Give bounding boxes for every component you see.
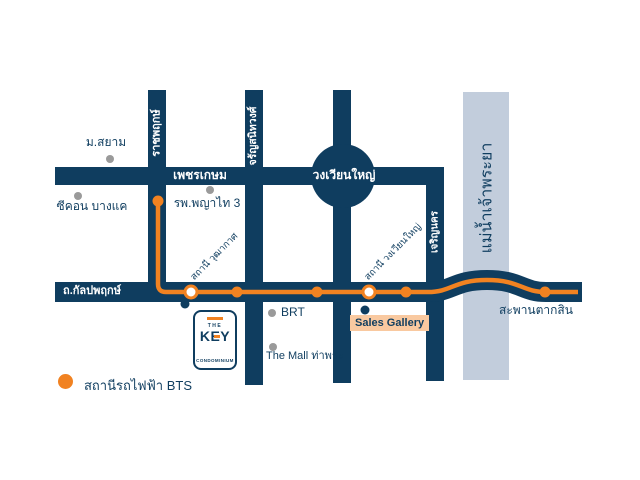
sales-gallery-tag: Sales Gallery — [350, 315, 429, 331]
station-dot-saphan-taksin — [540, 287, 551, 298]
road-label-charoen-nakhon: เจริญนคร — [429, 211, 441, 253]
road-label-wongwian-yai: วงเวียนใหญ่ — [302, 169, 386, 183]
station-label-saphan-taksin: สะพานตากสิน — [496, 304, 576, 318]
the-key-condominium-logo: THE KEY CONDOMINIUM — [193, 310, 237, 370]
logo-condominium-text: CONDOMINIUM — [195, 358, 235, 363]
sales-gallery-dot — [361, 306, 370, 315]
road-label-charansanitwong: จรัญสนิทวงศ์ — [247, 107, 259, 166]
road-label-kalapapruek: ถ.กัลปพฤกษ์ — [56, 285, 128, 298]
station-dot-2 — [312, 287, 323, 298]
logo-e-accent — [214, 335, 220, 338]
landmark-brt: BRT — [281, 306, 305, 320]
station-dot-bang-wa — [153, 196, 164, 207]
station-dot-wongwian-yai-highlighted — [363, 286, 375, 298]
road-wongwianyai-vertical — [333, 90, 351, 383]
brt-dot — [268, 309, 276, 317]
siam-university-dot — [106, 155, 114, 163]
the-key-location-dot — [181, 300, 190, 309]
legend-bts-station-label: สถานีรถไฟฟ้า BTS — [84, 375, 192, 396]
road-charoen-nakhon — [426, 167, 444, 381]
logo-key-text: KEY — [195, 329, 235, 344]
landmark-siam-university: ม.สยาม — [78, 136, 134, 150]
road-label-phetkasem: เพชรเกษม — [158, 169, 242, 183]
station-dot-1 — [232, 287, 243, 298]
station-dot-wutthakat-highlighted — [185, 286, 197, 298]
landmark-seacon-bangkae: ซีคอน บางแค — [46, 200, 138, 214]
legend-bts-station-dot — [58, 374, 73, 389]
river-label-chao-phraya: แม่น้ำเจ้าพระยา — [475, 143, 500, 254]
road-label-ratchaphruek: ราชพฤกษ์ — [151, 109, 164, 156]
phyathai3-dot — [206, 186, 214, 194]
landmark-phyathai3-hospital: รพ.พญาไท 3 — [168, 197, 246, 211]
logo-orange-bar — [207, 317, 223, 320]
station-dot-3 — [401, 287, 412, 298]
map-graphics — [0, 0, 640, 480]
landmark-the-mall-thapra: The Mall ท่าพระ — [266, 350, 344, 363]
location-map: ม.สยาม ซีคอน บางแค รพ.พญาไท 3 BRT The Ma… — [0, 0, 640, 480]
